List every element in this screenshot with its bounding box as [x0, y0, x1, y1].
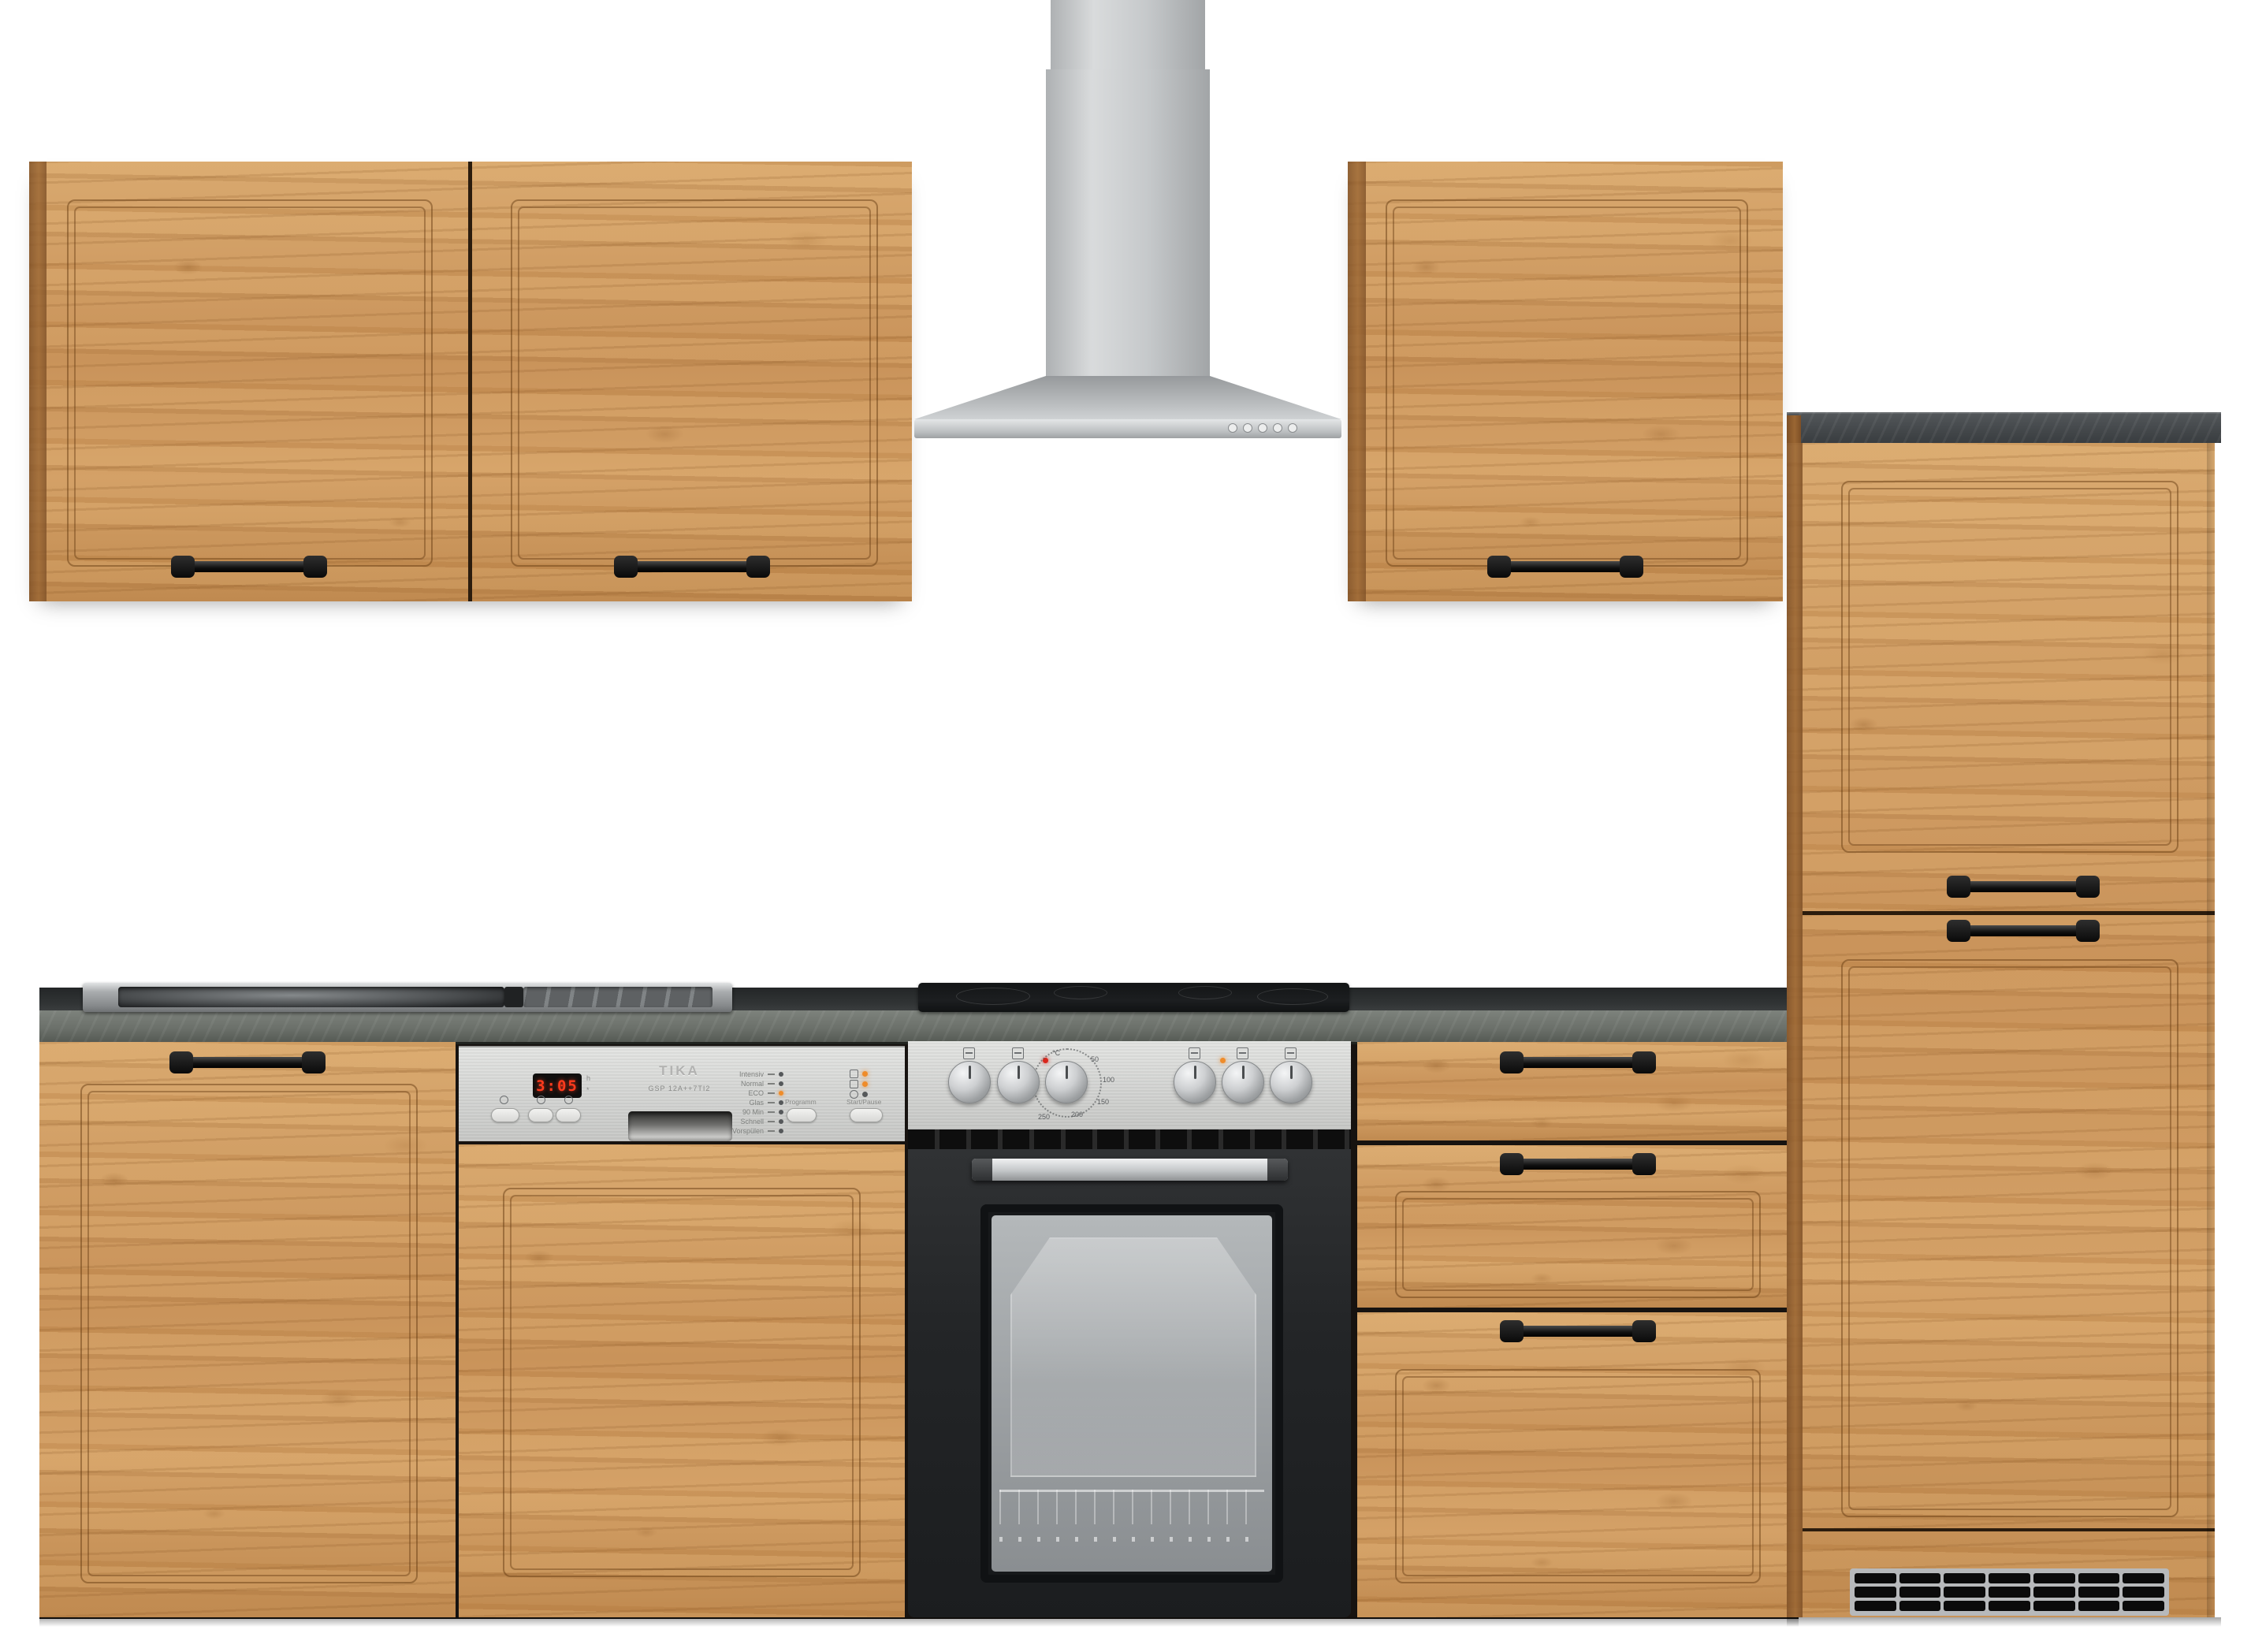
program-led — [779, 1081, 783, 1086]
program-row: Normal — [717, 1079, 783, 1088]
program-led — [779, 1100, 783, 1105]
tall-lower-door-frame — [1841, 959, 2178, 1517]
dial-temp: 200 — [1071, 1111, 1083, 1118]
sink-base-door-frame — [80, 1084, 418, 1583]
oven-heat-led — [1220, 1058, 1226, 1063]
program-led-on — [779, 1091, 783, 1096]
tall-cabinet-right-edge — [2207, 443, 2215, 1617]
hob-zone — [1257, 988, 1328, 1005]
hotplate-icon — [1012, 1047, 1024, 1059]
hob-zone — [1178, 986, 1232, 999]
wall-cabinet-right-side-edge — [1348, 162, 1366, 601]
sink-drain-divider — [504, 987, 523, 1007]
range-hood — [914, 0, 1341, 438]
sink-basin — [118, 987, 504, 1007]
dishwasher-program-button[interactable] — [787, 1108, 817, 1122]
countertop-front-edge — [39, 1010, 1799, 1044]
dishwasher-start-button[interactable] — [850, 1108, 883, 1122]
handle-end-bracket — [972, 1159, 992, 1181]
drawer-3-frame — [1395, 1369, 1761, 1583]
drawer-1-handle[interactable] — [1503, 1057, 1653, 1068]
tall-upper-door-frame — [1841, 481, 2178, 853]
drawer-2-frame — [1395, 1191, 1761, 1298]
power-icon — [500, 1096, 508, 1104]
wall-cabinet-right-door-frame — [1386, 199, 1748, 567]
appliance-vent-grille — [1850, 1568, 2169, 1616]
program-led — [779, 1110, 783, 1114]
dial-temp: 50 — [1091, 1055, 1099, 1063]
tall-lower-door-handle[interactable] — [1950, 925, 2097, 936]
program-led — [779, 1119, 783, 1124]
tall-cabinet-slab-corner — [1787, 415, 1801, 443]
hood-button — [1273, 423, 1282, 433]
dishwasher-door-frame — [503, 1188, 861, 1577]
wall-cabinet-right — [1348, 162, 1783, 601]
oven: °C 50 100 150 200 250 — [908, 1041, 1351, 1617]
oven-rack-reflection — [999, 1490, 1264, 1524]
dishwasher-status-cluster — [850, 1069, 886, 1099]
wall-cabinet-left — [29, 162, 912, 601]
program-row: Intensiv — [717, 1070, 783, 1079]
drawer-3-handle[interactable] — [1503, 1326, 1653, 1337]
program-row-active: ECO — [717, 1088, 783, 1098]
dishwasher: 3:05 h * TIKA GSP 12A++7TI2 Intensiv Nor… — [459, 1042, 905, 1617]
hotplate-icon — [963, 1047, 975, 1059]
hood-chimney — [1046, 69, 1210, 376]
dishwasher-option-button-1[interactable] — [528, 1108, 553, 1122]
option-icon — [537, 1096, 545, 1104]
dishwasher-wood-door — [459, 1144, 905, 1617]
dishwasher-display: 3:05 — [533, 1073, 582, 1098]
wall-cabinet-left-door-divider — [468, 162, 472, 601]
drawer-3 — [1357, 1312, 1797, 1617]
dishwasher-option-button-2[interactable] — [556, 1108, 581, 1122]
ceramic-hob — [918, 983, 1349, 1012]
dishwasher-aux-top: h — [586, 1074, 590, 1082]
tall-upper-door-handle[interactable] — [1950, 881, 2097, 892]
drawer-1 — [1357, 1042, 1797, 1140]
sink-unit — [83, 983, 732, 1012]
dial-temp: 150 — [1097, 1098, 1109, 1106]
wall-cabinet-left-door2-handle[interactable] — [617, 561, 767, 572]
dishwasher-display-value: 3:05 — [536, 1077, 579, 1095]
tall-door-divider — [1803, 911, 2215, 915]
oven-temperature-knob[interactable] — [1045, 1061, 1088, 1103]
hotplate-knob-3[interactable] — [1222, 1061, 1264, 1103]
hood-button — [1258, 423, 1267, 433]
hood-buttons[interactable] — [1228, 423, 1304, 434]
dishwasher-grip-recess[interactable] — [628, 1111, 732, 1141]
floor-shadow — [1787, 1617, 2221, 1627]
program-button-label: Programm — [785, 1098, 817, 1106]
hood-canopy — [914, 376, 1341, 419]
program-led — [779, 1072, 783, 1077]
tall-cabinet-side-edge — [1787, 443, 1803, 1617]
oven-function-icon — [1189, 1047, 1200, 1059]
sink-base-cabinet-door — [39, 1042, 456, 1617]
clock-icon — [1285, 1047, 1297, 1059]
handle-end-bracket — [1267, 1159, 1288, 1181]
wall-cabinet-right-door-handle[interactable] — [1490, 561, 1640, 572]
hotplate-knob-2[interactable] — [997, 1061, 1040, 1103]
dishwasher-aux-bottom: * — [586, 1086, 590, 1094]
wall-cabinet-left-door2-frame — [511, 199, 878, 567]
dial-temp: 100 — [1103, 1076, 1114, 1084]
floor-shadow — [39, 1617, 1799, 1627]
hob-zone — [1054, 986, 1107, 999]
program-led — [779, 1129, 783, 1133]
hotplate-knob-1[interactable] — [948, 1061, 991, 1103]
tall-plinth-divider — [1803, 1528, 2215, 1531]
sink-drainboard — [523, 987, 713, 1007]
dial-temp: 250 — [1038, 1113, 1050, 1121]
hood-button — [1243, 423, 1252, 433]
hotplate-knob-4[interactable] — [1270, 1061, 1312, 1103]
hood-button — [1288, 423, 1297, 433]
oven-vent-gap — [908, 1129, 1351, 1149]
dishwasher-control-panel: 3:05 h * TIKA GSP 12A++7TI2 Intensiv Nor… — [459, 1046, 905, 1141]
hood-button — [1228, 423, 1237, 433]
tall-cabinet-body — [1787, 443, 2215, 1617]
oven-rack-dots — [999, 1537, 1264, 1542]
hood-chimney-upper — [1051, 0, 1205, 70]
oven-door — [908, 1149, 1351, 1617]
wall-cabinet-left-side-edge — [29, 162, 47, 601]
oven-glass-reflection — [1010, 1237, 1256, 1477]
fan-icon — [1237, 1047, 1248, 1059]
oven-function-knob[interactable] — [1174, 1061, 1216, 1103]
drawer-2 — [1357, 1145, 1797, 1308]
oven-window-glass — [992, 1215, 1272, 1572]
program-row: Glas — [717, 1098, 783, 1107]
oven-window — [980, 1204, 1283, 1583]
oven-door-handle[interactable] — [972, 1159, 1288, 1181]
oven-control-panel: °C 50 100 150 200 250 — [908, 1041, 1351, 1129]
wall-cabinet-left-door1-handle[interactable] — [174, 561, 324, 572]
start-button-label: Start/Pause — [846, 1098, 881, 1106]
drawer-2-handle[interactable] — [1503, 1159, 1653, 1170]
tall-cabinet-top-slab — [1787, 412, 2221, 443]
dishwasher-power-button[interactable] — [491, 1108, 519, 1122]
hob-zone — [956, 988, 1030, 1005]
sink-base-door-handle[interactable] — [173, 1057, 322, 1068]
drawer-unit — [1357, 1042, 1797, 1617]
kitchen-product-photo: 3:05 h * TIKA GSP 12A++7TI2 Intensiv Nor… — [0, 0, 2251, 1652]
wall-cabinet-left-door1-frame — [67, 199, 433, 567]
tall-cabinet — [1787, 412, 2221, 1617]
option-icon — [564, 1096, 573, 1104]
